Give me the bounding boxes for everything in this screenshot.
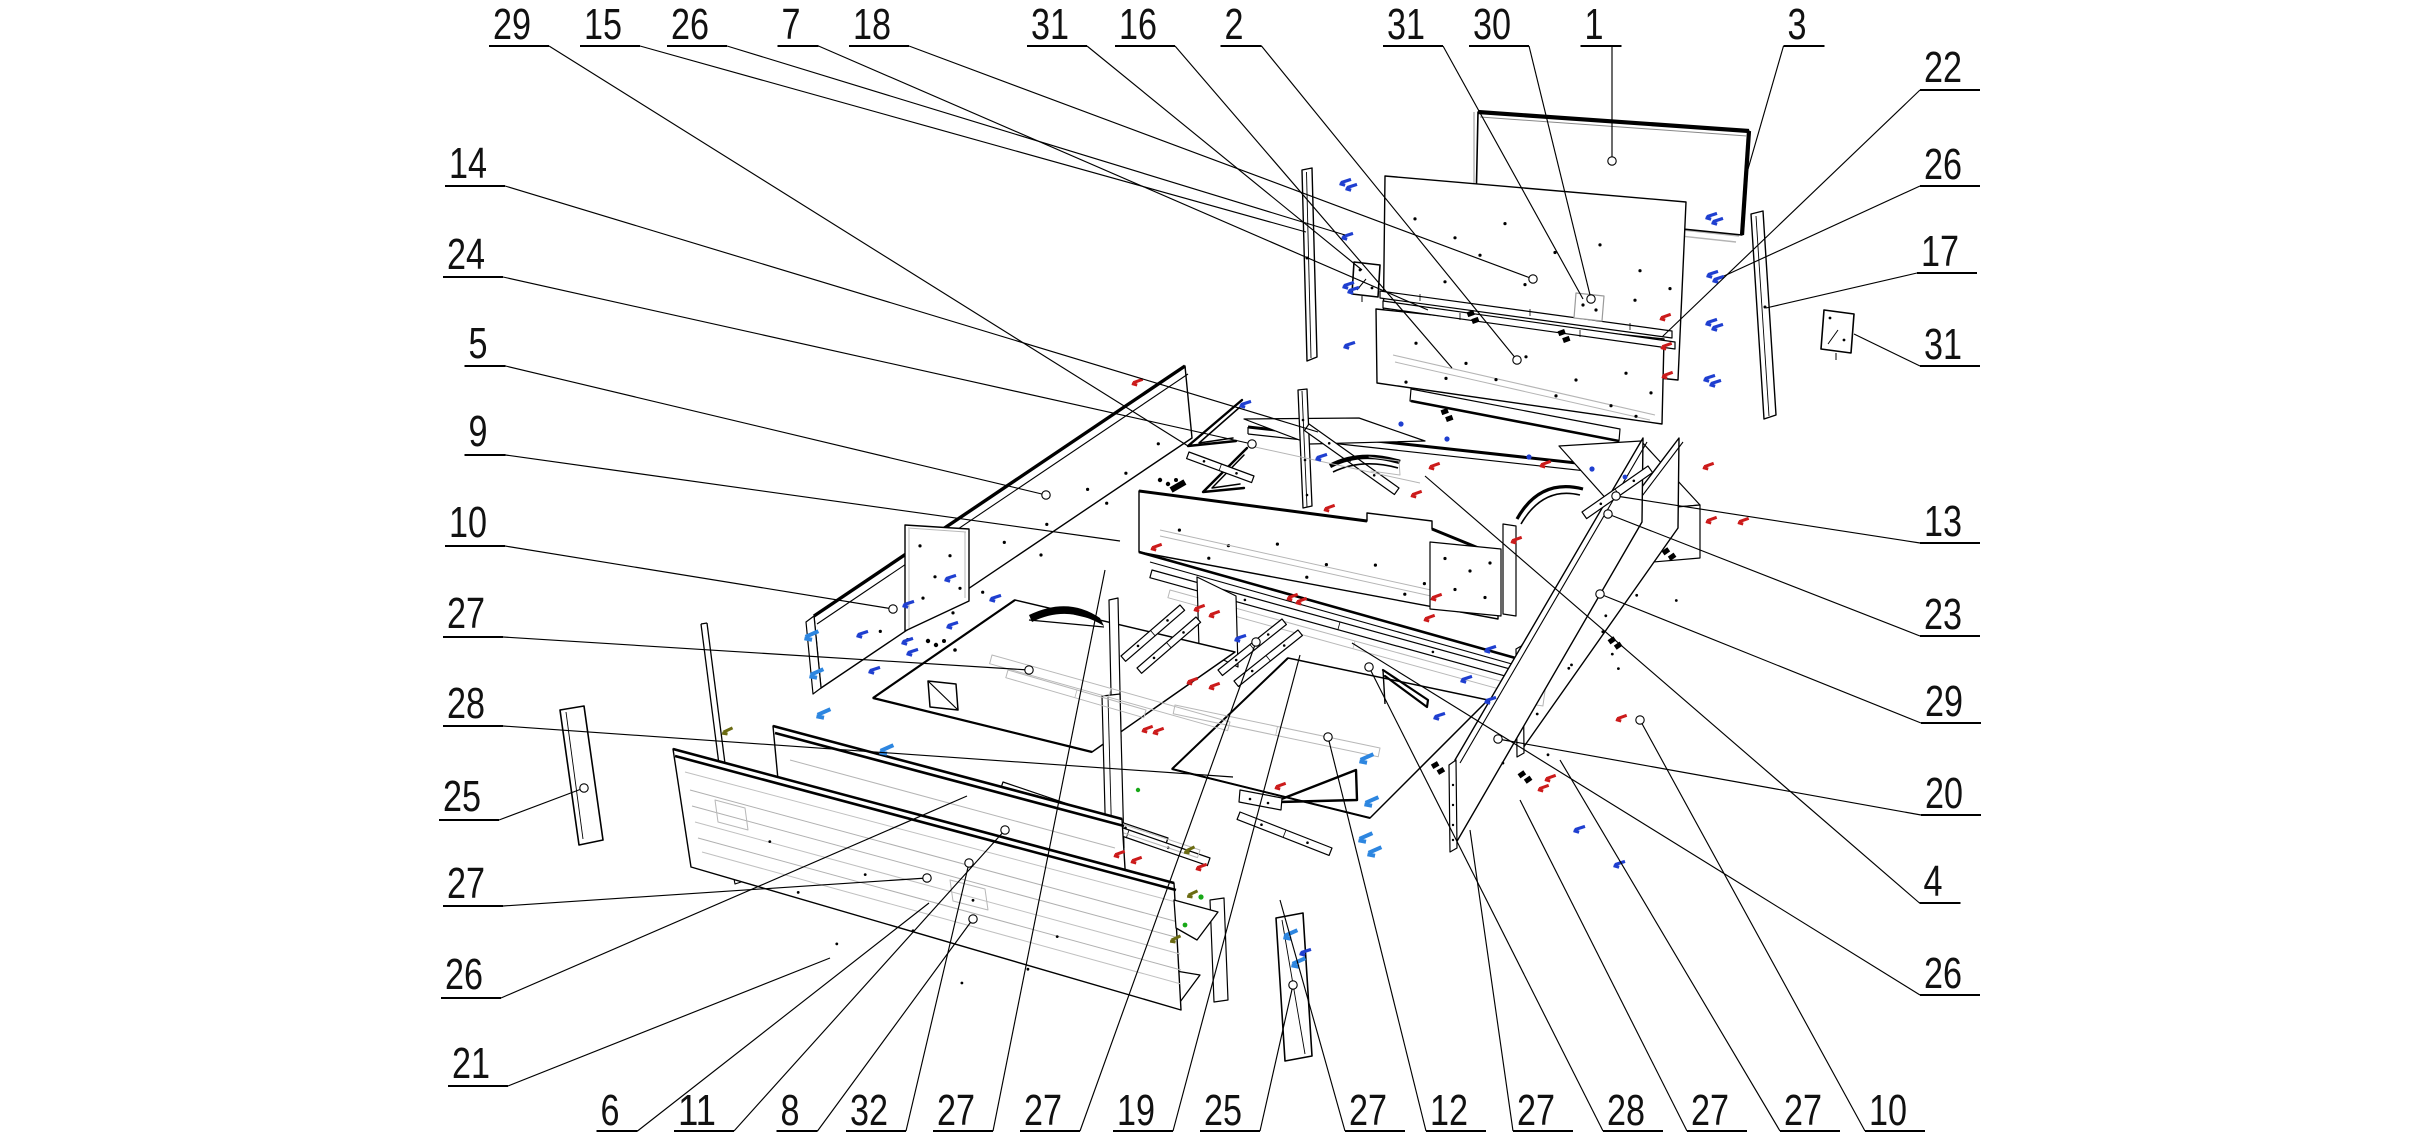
svg-text:14: 14 [449, 139, 487, 188]
svg-text:20: 20 [1925, 769, 1963, 818]
svg-text:29: 29 [1925, 677, 1963, 726]
svg-text:27: 27 [447, 589, 485, 638]
svg-text:18: 18 [853, 0, 891, 49]
svg-text:1: 1 [1585, 0, 1604, 49]
svg-text:19: 19 [1117, 1086, 1155, 1134]
svg-text:21: 21 [452, 1039, 490, 1088]
svg-text:31: 31 [1031, 0, 1069, 49]
svg-text:27: 27 [1517, 1086, 1555, 1134]
svg-text:4: 4 [1924, 857, 1943, 906]
svg-text:10: 10 [1869, 1086, 1907, 1134]
svg-text:25: 25 [1204, 1086, 1242, 1134]
svg-text:29: 29 [493, 0, 531, 49]
svg-text:27: 27 [447, 859, 485, 908]
svg-text:24: 24 [447, 230, 485, 279]
svg-text:7: 7 [782, 0, 801, 49]
svg-text:17: 17 [1921, 227, 1959, 276]
svg-text:27: 27 [1784, 1086, 1822, 1134]
svg-text:3: 3 [1788, 0, 1807, 49]
svg-text:16: 16 [1119, 0, 1157, 49]
svg-text:10: 10 [449, 498, 487, 547]
svg-text:31: 31 [1924, 320, 1962, 369]
svg-text:26: 26 [1924, 949, 1962, 998]
svg-text:25: 25 [443, 772, 481, 821]
svg-text:13: 13 [1924, 497, 1962, 546]
svg-text:23: 23 [1924, 590, 1962, 639]
svg-text:30: 30 [1473, 0, 1511, 49]
svg-text:12: 12 [1430, 1086, 1468, 1134]
svg-text:26: 26 [445, 950, 483, 999]
svg-text:28: 28 [1607, 1086, 1645, 1134]
svg-text:9: 9 [469, 407, 488, 456]
svg-text:6: 6 [601, 1086, 620, 1134]
svg-text:2: 2 [1225, 0, 1244, 49]
svg-text:11: 11 [678, 1086, 716, 1134]
svg-text:27: 27 [937, 1086, 975, 1134]
svg-text:32: 32 [850, 1086, 888, 1134]
svg-text:27: 27 [1024, 1086, 1062, 1134]
svg-text:27: 27 [1349, 1086, 1387, 1134]
svg-text:28: 28 [447, 679, 485, 728]
svg-text:27: 27 [1691, 1086, 1729, 1134]
svg-text:5: 5 [469, 319, 488, 368]
svg-text:22: 22 [1924, 43, 1962, 92]
svg-text:15: 15 [584, 0, 622, 49]
svg-text:31: 31 [1387, 0, 1425, 49]
svg-text:26: 26 [1924, 140, 1962, 189]
svg-text:26: 26 [671, 0, 709, 49]
svg-text:8: 8 [781, 1086, 800, 1134]
